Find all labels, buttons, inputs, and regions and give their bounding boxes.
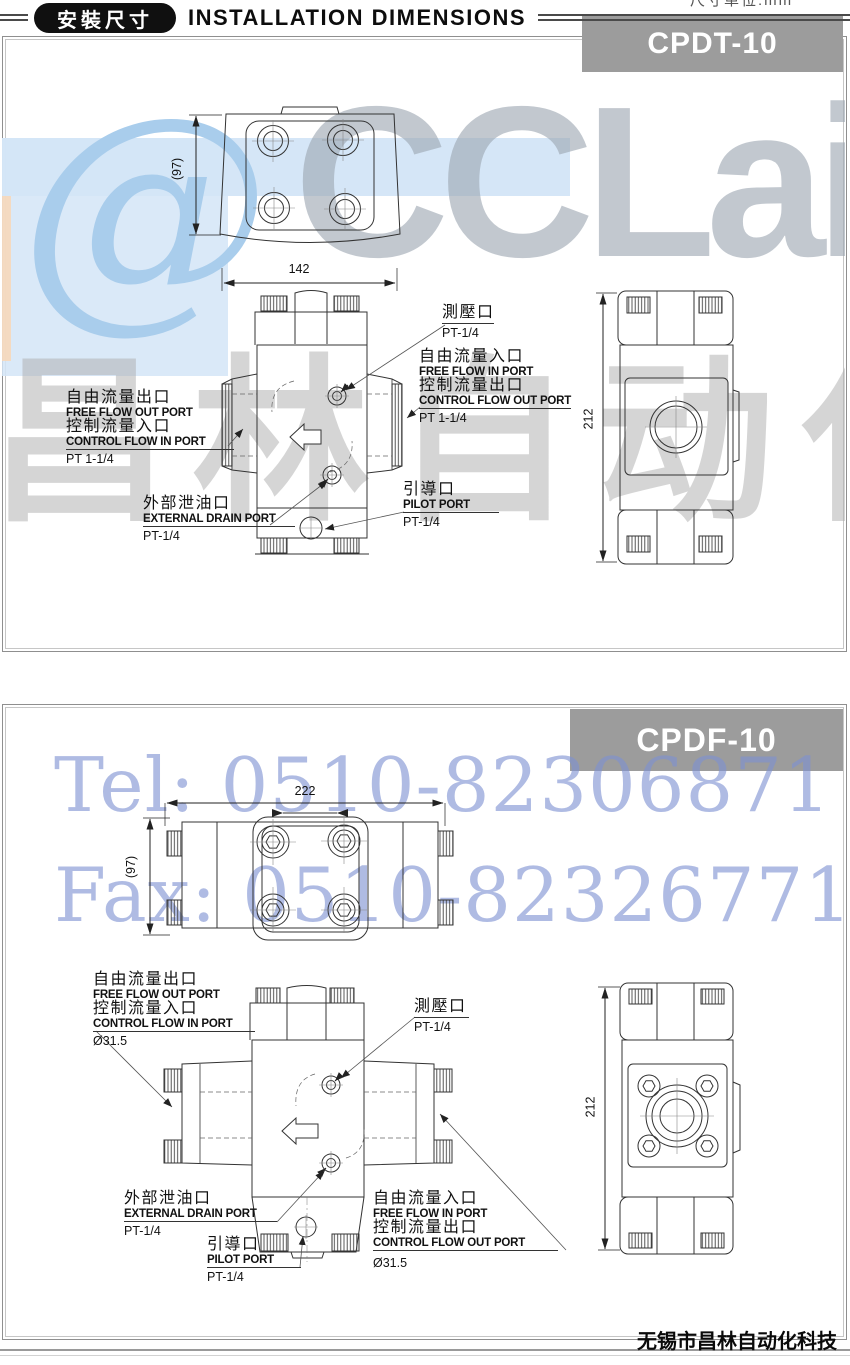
unit-note-clipped: 尺寸单位:mm [690, 0, 850, 8]
header-rule-left [0, 14, 28, 21]
catalog-page: 安裝尺寸 INSTALLATION DIMENSIONS 尺寸单位:mm CPD… [0, 0, 850, 1365]
panel-cpdt10 [2, 36, 847, 652]
label-size: PT-1/4 [442, 327, 494, 340]
label-cn: 測壓口 [442, 305, 494, 324]
label-p1-drain-port: 外部泄油口 EXTERNAL DRAIN PORT PT-1/4 [143, 496, 295, 543]
label-cn: 控制流量出口 [373, 1220, 558, 1237]
label-p1-free-flow-in: 自由流量入口 FREE FLOW IN PORT 控制流量出口 CONTROL … [419, 349, 571, 425]
label-en: PILOT PORT [403, 499, 499, 513]
header-rule-right [538, 14, 850, 21]
label-cn: 測壓口 [414, 999, 469, 1018]
label-p1-gauge-port: 測壓口 PT-1/4 [442, 305, 494, 340]
company-name: 无锡市昌林自动化科技 [637, 1325, 837, 1354]
model-badge-cpdf10: CPDF-10 [570, 709, 843, 771]
page-title: INSTALLATION DIMENSIONS [188, 5, 526, 31]
label-en: PILOT PORT [207, 1254, 301, 1268]
label-p2-gauge-port: 測壓口 PT-1/4 [414, 999, 469, 1034]
label-size: PT 1-1/4 [419, 412, 571, 425]
label-p1-pilot-port: 引導口 PILOT PORT PT-1/4 [403, 482, 499, 529]
header-badge-text: 安裝尺寸 [57, 4, 153, 33]
label-cn: 自由流量出口 [93, 971, 198, 988]
label-cn: 外部泄油口 [124, 1190, 212, 1207]
label-cn: 自由流量入口 [373, 1190, 478, 1207]
dim-width-1: 142 [284, 262, 314, 276]
model-badge-cpdt10: CPDT-10 [582, 15, 843, 72]
unit-note-text: 尺寸单位:mm [690, 0, 850, 8]
dim-height-2: 212 [583, 1097, 597, 1118]
header-badge-pill: 安裝尺寸 [34, 3, 176, 33]
label-en: CONTROL FLOW IN PORT [93, 1018, 255, 1032]
label-en: EXTERNAL DRAIN PORT [143, 513, 295, 527]
label-p1-free-flow-out: 自由流量出口 FREE FLOW OUT PORT 控制流量入口 CONTROL… [66, 390, 234, 466]
model-name: CPDT-10 [647, 27, 777, 61]
label-size: Ø31.5 [373, 1257, 558, 1270]
label-cn: 自由流量出口 [66, 389, 171, 406]
label-cn: 外部泄油口 [143, 495, 231, 512]
label-p2-drain-port: 外部泄油口 EXTERNAL DRAIN PORT PT-1/4 [124, 1191, 277, 1238]
dim-height-1: 212 [581, 409, 595, 430]
label-size: PT-1/4 [403, 516, 499, 529]
label-cn: 控制流量入口 [66, 419, 234, 436]
label-cn: 引導口 [207, 1236, 260, 1253]
label-size: PT-1/4 [207, 1271, 301, 1284]
label-size: PT-1/4 [143, 530, 295, 543]
label-en: CONTROL FLOW OUT PORT [419, 395, 571, 409]
label-p2-pilot-port: 引導口 PILOT PORT PT-1/4 [207, 1237, 301, 1284]
dim-depth-1: (97) [170, 158, 184, 180]
label-size: Ø31.5 [93, 1035, 255, 1048]
label-cn: 控制流量入口 [93, 1001, 255, 1018]
label-cn: 引導口 [403, 481, 456, 498]
model-name: CPDF-10 [636, 722, 776, 759]
dim-width-2: 222 [288, 784, 322, 798]
label-p2-free-flow-in: 自由流量入口 FREE FLOW IN PORT 控制流量出口 CONTROL … [373, 1191, 558, 1270]
label-cn: 自由流量入口 [419, 348, 524, 365]
label-size: PT 1-1/4 [66, 453, 234, 466]
label-cn: 控制流量出口 [419, 378, 571, 395]
label-en: CONTROL FLOW OUT PORT [373, 1237, 558, 1251]
dim-depth-2: (97) [124, 856, 138, 878]
label-size: PT-1/4 [414, 1021, 469, 1034]
label-p2-free-flow-out: 自由流量出口 FREE FLOW OUT PORT 控制流量入口 CONTROL… [93, 972, 255, 1048]
label-en: EXTERNAL DRAIN PORT [124, 1208, 277, 1222]
label-en: CONTROL FLOW IN PORT [66, 436, 234, 450]
